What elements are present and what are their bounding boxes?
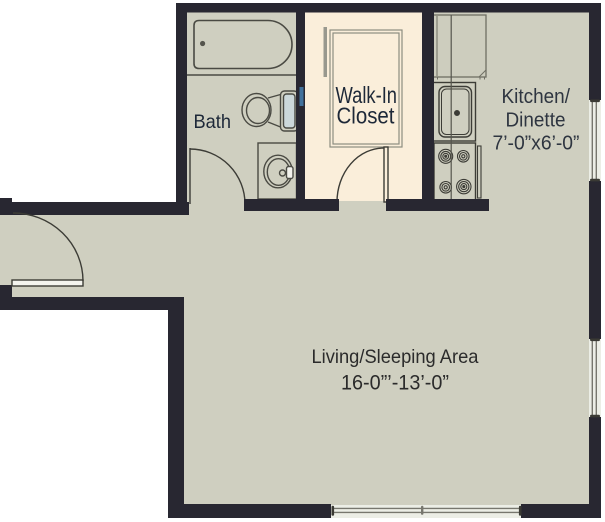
svg-text:16-0”’-13’-0”: 16-0”’-13’-0”	[341, 372, 449, 395]
svg-text:Kitchen/: Kitchen/	[502, 85, 571, 108]
svg-text:Bath: Bath	[194, 111, 232, 133]
svg-text:7’-0”x6’-0”: 7’-0”x6’-0”	[493, 132, 580, 155]
svg-text:Closet: Closet	[337, 103, 396, 129]
svg-text:Dinette: Dinette	[506, 109, 566, 132]
svg-text:Living/Sleeping Area: Living/Sleeping Area	[312, 346, 479, 368]
